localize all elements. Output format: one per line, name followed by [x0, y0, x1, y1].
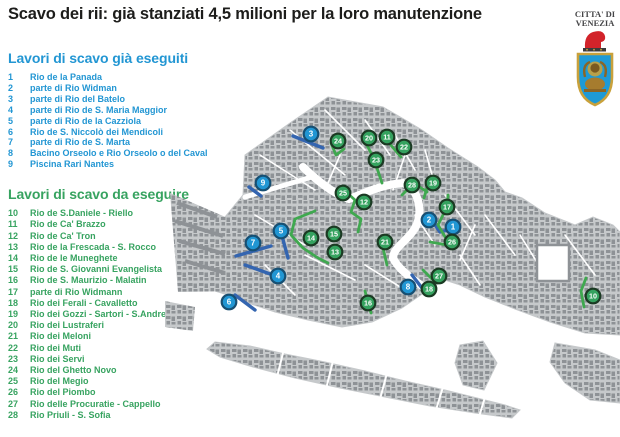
list-item-number: 11 [8, 219, 30, 230]
svg-text:25: 25 [339, 189, 347, 198]
map-marker-21: 21 [378, 235, 393, 250]
map-marker-8: 8 [401, 280, 416, 295]
sant-elena-island [550, 343, 620, 403]
list-item-number: 15 [8, 264, 30, 275]
list-item-name: Rio dei Gozzi - Sartori - S.Andrea [30, 309, 171, 320]
map-marker-19: 19 [426, 176, 441, 191]
svg-text:6: 6 [227, 298, 232, 307]
list-item-name: Rio dei Meloni [30, 331, 91, 342]
map-marker-25: 25 [336, 186, 351, 201]
svg-text:7: 7 [251, 239, 256, 248]
list-item-name: parte di Rio de la Cazziola [30, 116, 141, 127]
list-item-number: 14 [8, 253, 30, 264]
list-item-number: 7 [8, 137, 30, 148]
list-item-number: 6 [8, 127, 30, 138]
list-item-number: 16 [8, 275, 30, 286]
svg-text:10: 10 [589, 292, 597, 301]
list-item-name: Rio de le Muneghete [30, 253, 118, 264]
list-item-name: Rio delle Procuratie - Cappello [30, 399, 161, 410]
svg-text:15: 15 [330, 230, 338, 239]
list-item-name: Rio del Piombo [30, 387, 96, 398]
svg-text:17: 17 [443, 203, 451, 212]
venice-map: 1234567891011121314151617181920212223242… [165, 95, 620, 437]
map-marker-1: 1 [446, 220, 461, 235]
list-item-number: 24 [8, 365, 30, 376]
list-item-number: 17 [8, 287, 30, 298]
map-marker-16: 16 [361, 296, 376, 311]
list-item-name: Rio de la Frescada - S. Rocco [30, 242, 156, 253]
page-title: Scavo dei rii: già stanziati 4,5 milioni… [8, 5, 553, 24]
list-item-number: 23 [8, 354, 30, 365]
list-item-number: 26 [8, 387, 30, 398]
map-marker-2: 2 [422, 213, 437, 228]
svg-text:1: 1 [451, 223, 456, 232]
list-item-name: parte di Rio de S. Maria Maggior [30, 105, 167, 116]
list-item-name: Rio de S. Niccolò dei Mendicoli [30, 127, 163, 138]
svg-text:22: 22 [400, 143, 408, 152]
list-item-name: Rio dei Muti [30, 343, 81, 354]
list-item-number: 22 [8, 343, 30, 354]
list-item: 1Rio de la Panada [8, 72, 220, 83]
list-item-name: Rio del Ghetto Novo [30, 365, 117, 376]
map-marker-24: 24 [331, 134, 346, 149]
map-marker-12: 12 [357, 195, 372, 210]
list-item-number: 20 [8, 320, 30, 331]
svg-text:12: 12 [360, 198, 368, 207]
list-item-name: Rio dei Ferali - Cavalletto [30, 298, 138, 309]
map-marker-9: 9 [256, 176, 271, 191]
list-item-number: 13 [8, 242, 30, 253]
svg-text:4: 4 [276, 272, 281, 281]
done-list-heading: Lavori di scavo già eseguiti [8, 50, 220, 66]
list-item-name: Rio de Ca' Tron [30, 231, 96, 242]
list-item-name: Rio de S.Daniele - Riello [30, 208, 133, 219]
list-item-number: 25 [8, 376, 30, 387]
list-item: 2parte di Rio Widman [8, 83, 220, 94]
map-marker-3: 3 [304, 127, 319, 142]
svg-text:5: 5 [279, 227, 284, 236]
svg-text:21: 21 [381, 238, 389, 247]
list-item-name: Rio de S. Maurizio - Malatin [30, 275, 147, 286]
list-item-number: 21 [8, 331, 30, 342]
list-item-name: Rio de S. Giovanni Evangelista [30, 264, 162, 275]
list-item-number: 4 [8, 105, 30, 116]
map-marker-7: 7 [246, 236, 261, 251]
list-item-number: 3 [8, 94, 30, 105]
map-marker-13: 13 [328, 245, 343, 260]
svg-text:28: 28 [408, 181, 416, 190]
list-item-number: 1 [8, 72, 30, 83]
list-item-name: Rio de la Panada [30, 72, 102, 83]
map-marker-23: 23 [369, 153, 384, 168]
svg-text:16: 16 [364, 299, 372, 308]
map-marker-5: 5 [274, 224, 289, 239]
svg-text:27: 27 [435, 272, 443, 281]
list-item-name: parte di Rio Widman [30, 83, 117, 94]
list-item-name: Rio Priuli - S. Sofia [30, 410, 111, 421]
map-marker-14: 14 [304, 231, 319, 246]
map-marker-10: 10 [586, 289, 601, 304]
list-item-number: 27 [8, 399, 30, 410]
list-item-number: 5 [8, 116, 30, 127]
list-item-name: Rio dei Servi [30, 354, 85, 365]
svg-text:3: 3 [309, 130, 314, 139]
arsenale-basin [537, 245, 569, 281]
map-marker-11: 11 [380, 130, 395, 145]
map-marker-20: 20 [362, 131, 377, 146]
svg-text:13: 13 [331, 248, 339, 257]
list-item-name: parte di Rio Widmann [30, 287, 122, 298]
svg-text:24: 24 [334, 137, 342, 146]
list-item-number: 2 [8, 83, 30, 94]
map-marker-4: 4 [271, 269, 286, 284]
svg-text:8: 8 [406, 283, 411, 292]
svg-text:11: 11 [383, 133, 391, 142]
list-item-number: 18 [8, 298, 30, 309]
list-item-number: 19 [8, 309, 30, 320]
map-marker-22: 22 [397, 140, 412, 155]
list-item-name: Rio de Ca' Brazzo [30, 219, 106, 230]
map-marker-15: 15 [327, 227, 342, 242]
logo-text-line2: VENEZIA [576, 18, 616, 28]
svg-text:9: 9 [261, 179, 266, 188]
list-item-name: parte di Rio del Batelo [30, 94, 125, 105]
map-marker-6: 6 [222, 295, 237, 310]
map-marker-27: 27 [432, 269, 447, 284]
svg-text:14: 14 [307, 234, 315, 243]
list-item-number: 28 [8, 410, 30, 421]
svg-text:23: 23 [372, 156, 380, 165]
map-marker-17: 17 [440, 200, 455, 215]
svg-text:20: 20 [365, 134, 373, 143]
list-item-name: parte di Rio de S. Marta [30, 137, 130, 148]
list-item-number: 9 [8, 159, 30, 170]
san-giorgio-island [455, 341, 497, 390]
doge-cap-icon [583, 31, 606, 51]
map-marker-18: 18 [422, 282, 437, 297]
list-item-number: 10 [8, 208, 30, 219]
map-marker-28: 28 [405, 178, 420, 193]
svg-text:26: 26 [448, 238, 456, 247]
svg-text:18: 18 [425, 285, 433, 294]
list-item-number: 12 [8, 231, 30, 242]
map-marker-26: 26 [445, 235, 460, 250]
list-item-name: Piscina Rari Nantes [30, 159, 114, 170]
svg-text:2: 2 [427, 216, 432, 225]
list-item-number: 8 [8, 148, 30, 159]
svg-text:19: 19 [429, 179, 437, 188]
list-item-name: Rio del Megio [30, 376, 89, 387]
sacca-fisola-island [165, 301, 195, 331]
list-item-name: Rio dei Lustraferi [30, 320, 104, 331]
